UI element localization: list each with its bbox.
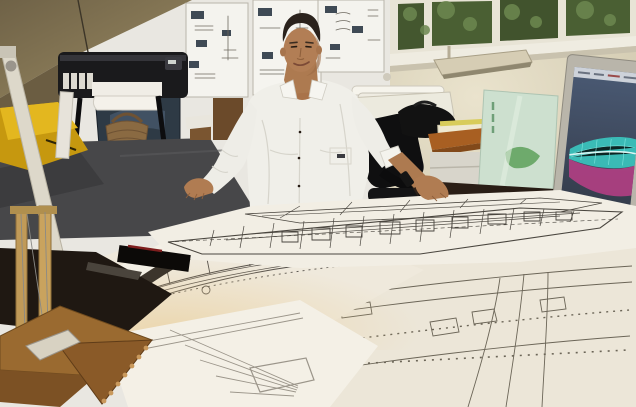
pole-joint bbox=[6, 61, 17, 72]
pole-bracket bbox=[0, 46, 16, 58]
ear-left bbox=[280, 48, 286, 57]
paper-roll bbox=[93, 96, 160, 110]
posts-crossbar bbox=[10, 206, 57, 214]
window-pane bbox=[566, 0, 630, 36]
paper-roll-slot bbox=[92, 82, 162, 96]
ear-right bbox=[316, 46, 322, 55]
scene-canvas: DELL bbox=[0, 0, 636, 407]
plotter-display bbox=[168, 60, 176, 64]
shirt-logo bbox=[337, 154, 345, 158]
photo-scene: DELL bbox=[0, 0, 636, 407]
wall-button bbox=[383, 73, 391, 81]
